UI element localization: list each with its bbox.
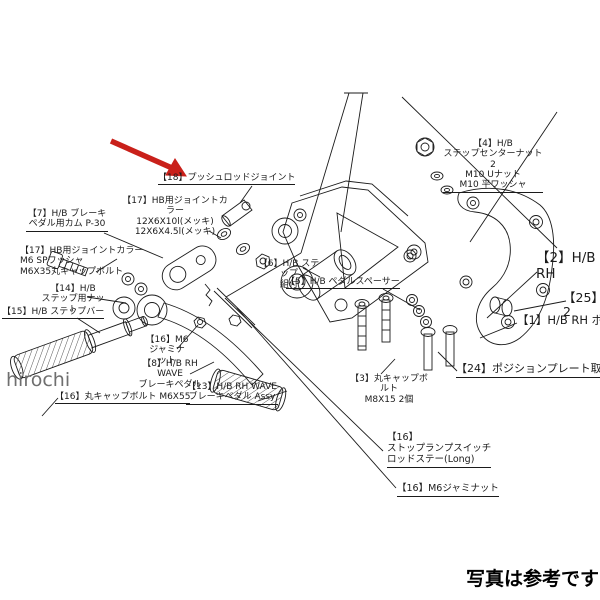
- collar-spacers: [404, 250, 512, 316]
- seller-watermark: hirochi: [6, 369, 70, 391]
- plate-mount-bolts: [407, 295, 458, 371]
- part-label-16-m6-jam-nut-lower: 【16】M6ジャミナット: [397, 484, 499, 497]
- part-label-3-cap-bolt-m8x15: 【3】丸キャップボルト M8X15 2個: [346, 374, 432, 405]
- part-label-24-plate-mount-bolt: 【24】ポジションプレート取付ボルト: [456, 363, 600, 378]
- part-label-2-cutoff: 【2】H/B RH: [536, 251, 600, 282]
- part-label-18-pushrod-joint: 【18】プッシュロッドジョイント: [158, 173, 295, 185]
- screenshot-root: 【18】プッシュロッドジョイント 【17】HB用ジョイントカラー 12X6X10…: [0, 0, 600, 600]
- part-label-7-brake-pedal-cam: 【7】H/B ブレーキ ペダル用カム P-30: [26, 209, 108, 232]
- part-label-4-step-center-nut: 【4】H/B ステップセンターナット2 M10 Uナット M10 平ワッシャ: [443, 139, 543, 193]
- part-label-16-stop-lamp-rod-stay: 【16】 ストップランプスイッチ ロッドステー(Long): [387, 433, 491, 468]
- part-label-13-brake-pedal-assy: 【13】H/B RH WAVE ブレーキペダル Assy: [186, 382, 278, 405]
- part-label-5-pedal-spacer: 【5】H/B ペダルスペーサー: [286, 277, 400, 289]
- brake-pedal-cam: [157, 241, 220, 295]
- part-label-17-joint-collar: 【17】HB用ジョイントカラー 12X6X10l(メッキ) 12X6X4.5l(…: [120, 196, 230, 237]
- red-arrow-icon: [111, 141, 186, 176]
- reference-photo-caption: 写真は参考です: [466, 564, 599, 591]
- step-washers: [113, 273, 147, 319]
- part-label-16-cap-bolt-m6x55: 【16】丸キャップボルト M6X55: [55, 392, 190, 404]
- part-label-1-position-plate-cutoff: 【1】H/B RH ポジションプレート: [517, 314, 600, 327]
- part-label-17-collar-bolt-set: 【17】HB用ジョイントカラー M6 SPワッシャ M6X35丸キャップボルト: [20, 246, 143, 277]
- part-label-15-step-bar: 【15】H/B ステップバー: [2, 307, 104, 319]
